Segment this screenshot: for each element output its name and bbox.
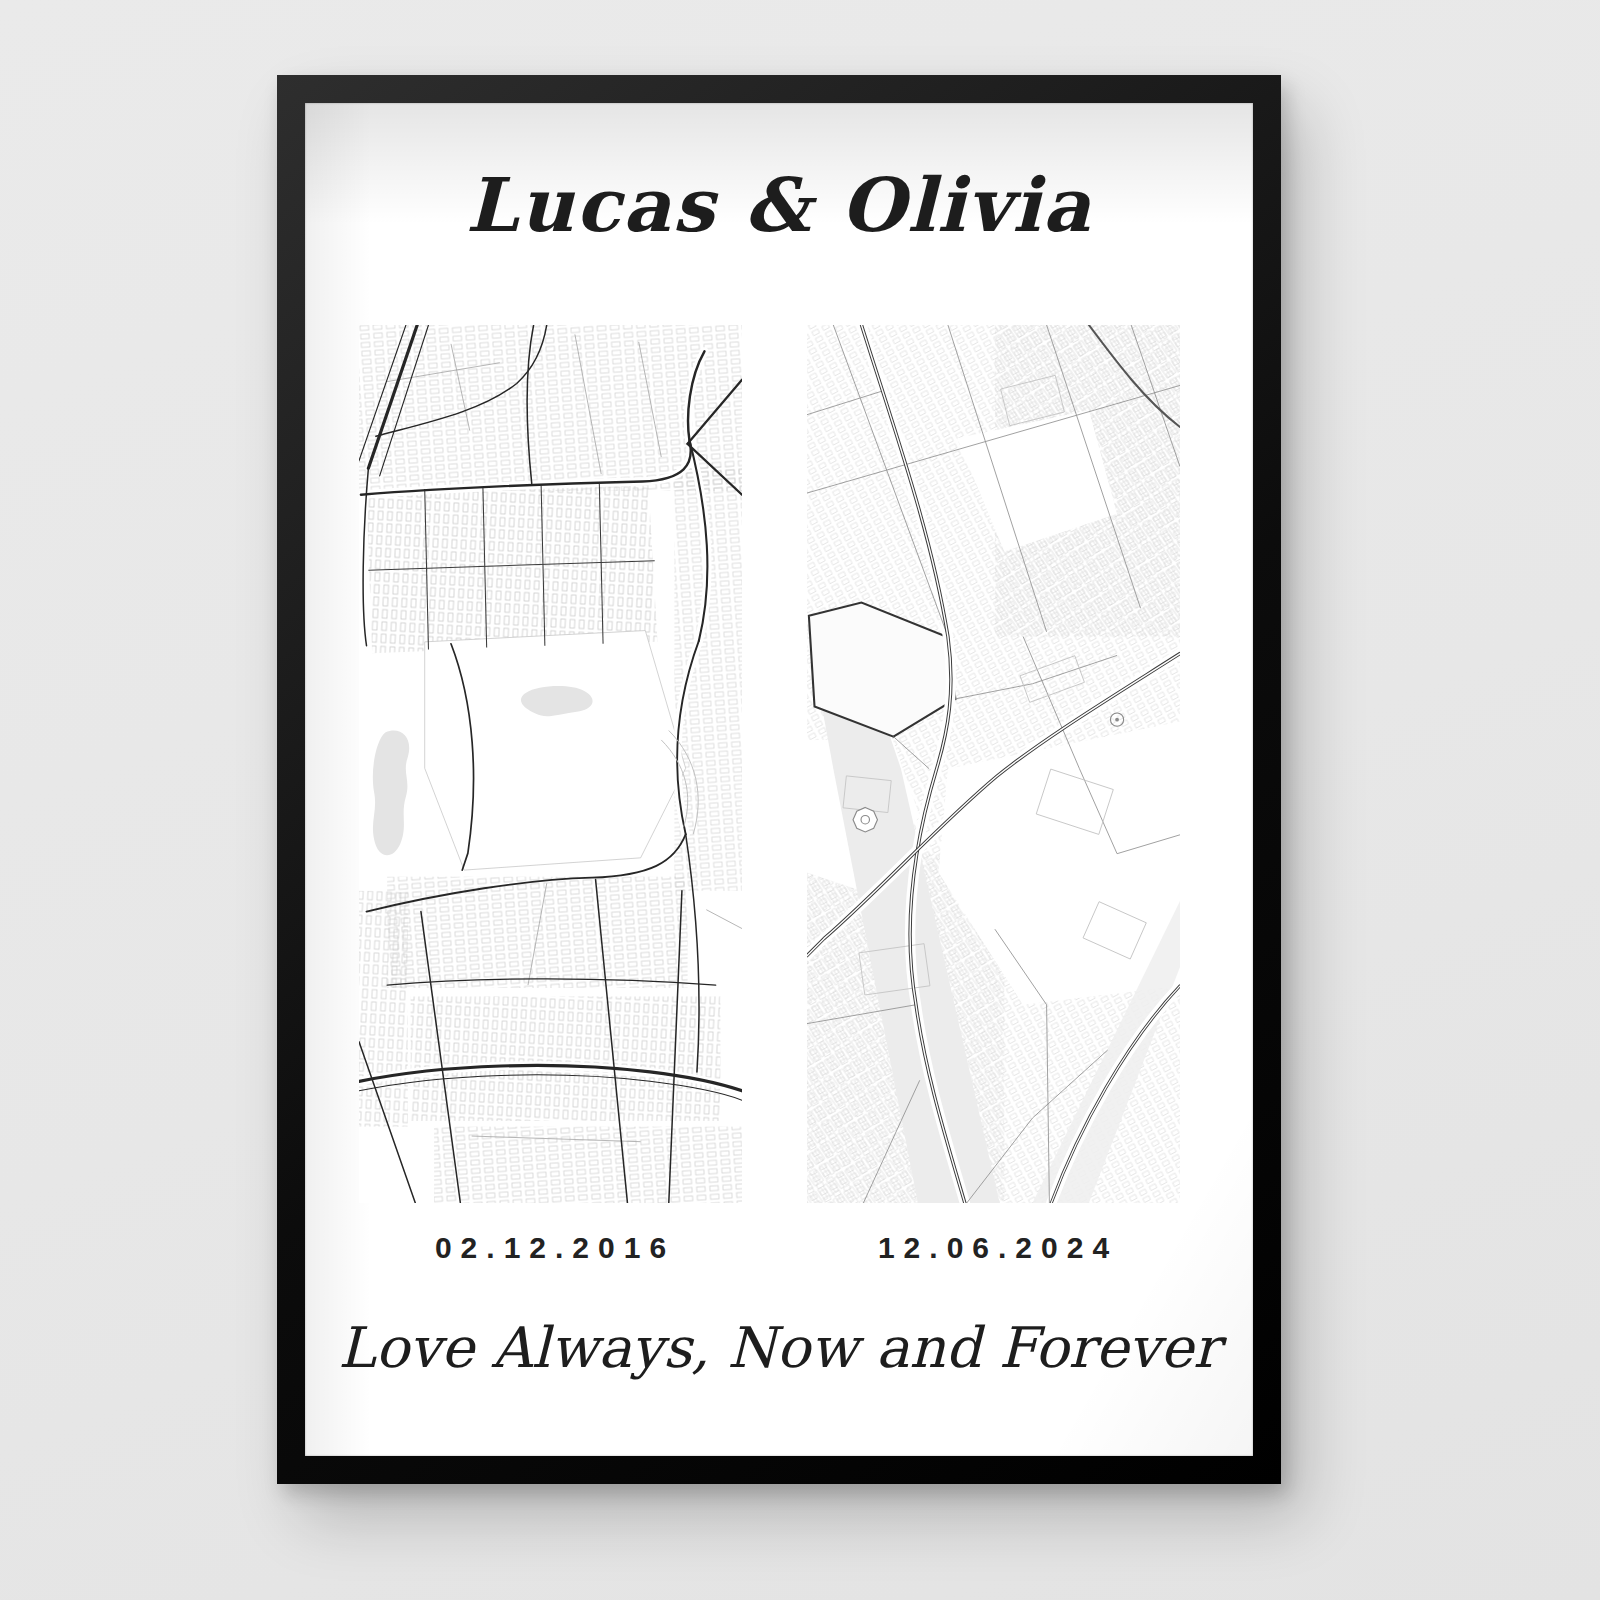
right-map-graphic bbox=[807, 325, 1180, 1203]
map-panel-right bbox=[807, 325, 1180, 1203]
poster-frame: Lucas & Olivia bbox=[277, 75, 1281, 1484]
map-panel-left bbox=[359, 325, 742, 1203]
poster-title: Lucas & Olivia bbox=[305, 155, 1253, 255]
date-right-label: 12.06.2024 bbox=[807, 1225, 1180, 1271]
poster-paper: Lucas & Olivia bbox=[305, 103, 1253, 1456]
date-left-label: 02.12.2016 bbox=[359, 1225, 742, 1271]
dates-row: 02.12.2016 12.06.2024 bbox=[305, 1225, 1253, 1271]
poster-caption: Love Always, Now and Forever bbox=[305, 1308, 1253, 1388]
left-map-graphic bbox=[359, 325, 742, 1203]
studio-background: Lucas & Olivia bbox=[0, 0, 1600, 1600]
